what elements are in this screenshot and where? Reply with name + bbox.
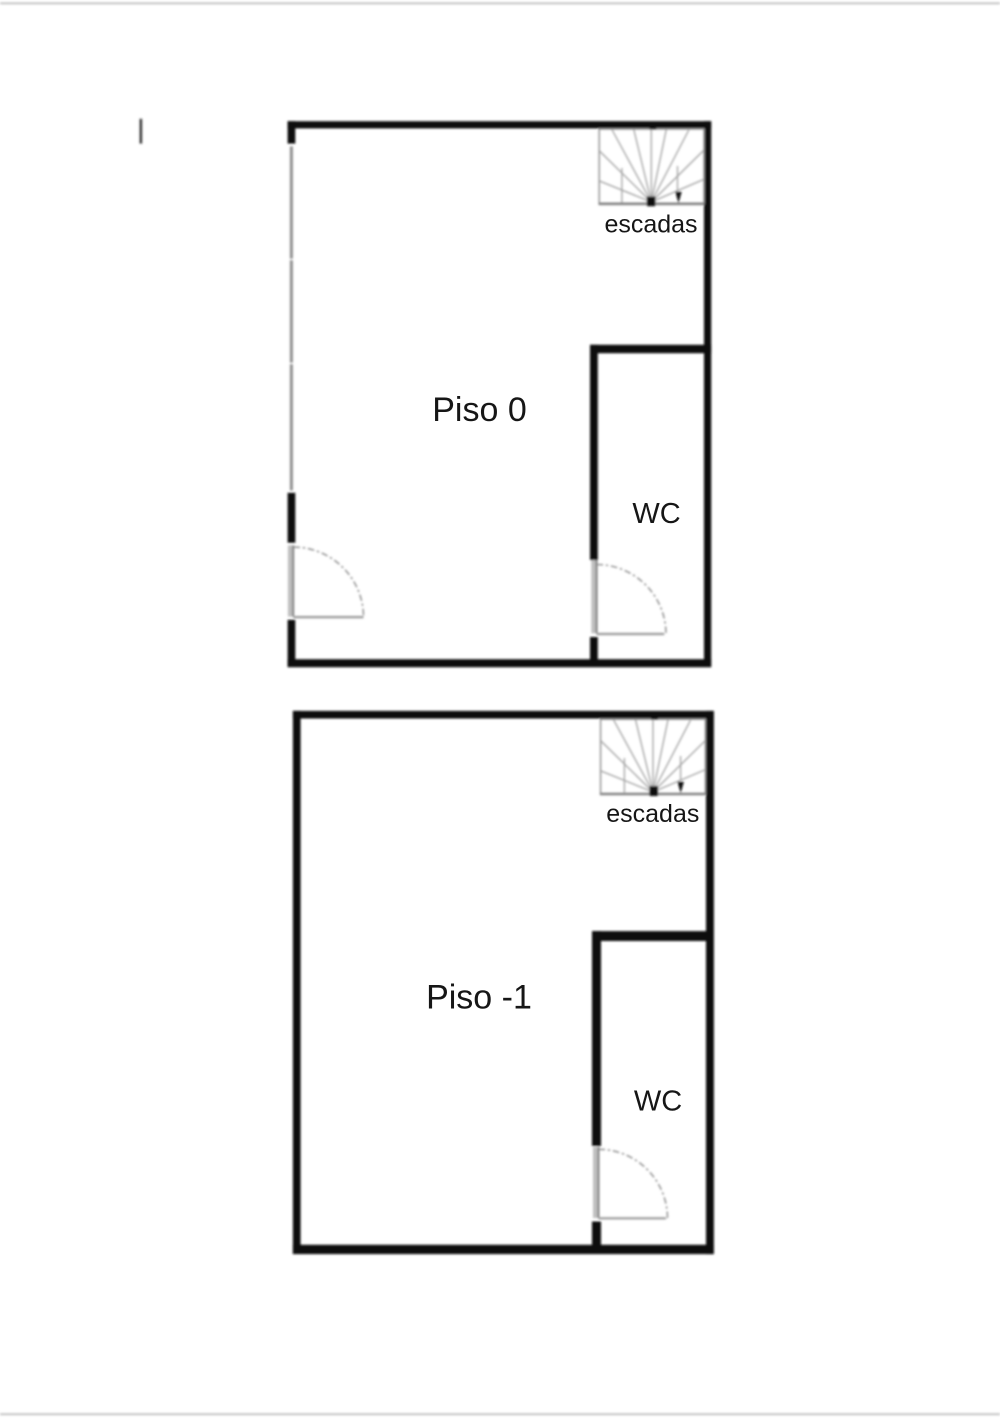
svg-text:WC: WC	[632, 498, 680, 530]
svg-text:Piso 0: Piso 0	[432, 391, 527, 429]
svg-text:Piso -1: Piso -1	[426, 979, 532, 1017]
svg-text:WC: WC	[634, 1086, 682, 1118]
svg-text:escadas: escadas	[604, 211, 697, 239]
svg-text:escadas: escadas	[606, 800, 699, 828]
